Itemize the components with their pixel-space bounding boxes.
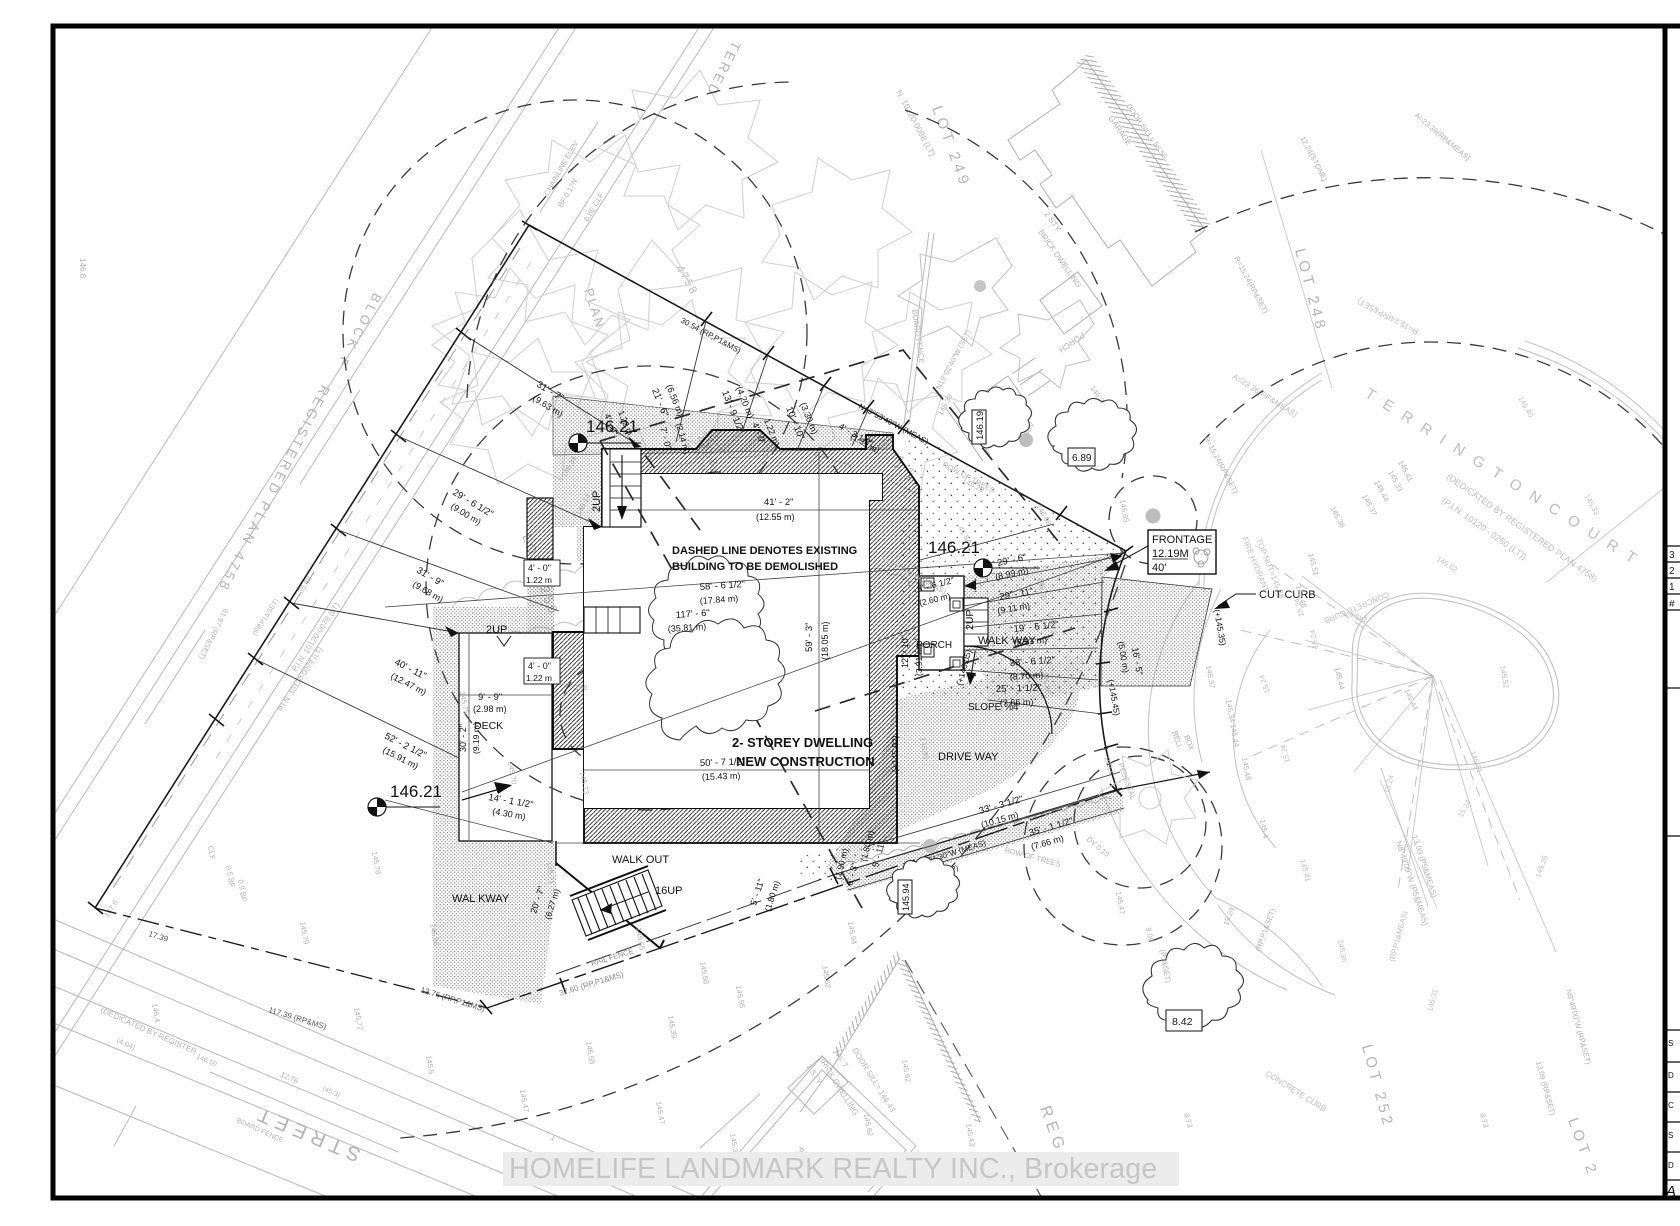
svg-text:BUILDING TO BE DEMOLISHED: BUILDING TO BE DEMOLISHED [672,561,838,573]
svg-text:(12.55 m): (12.55 m) [756,512,795,522]
svg-text:40': 40' [1152,562,1166,574]
svg-text:146.21: 146.21 [390,782,442,801]
svg-text:146: 146 [575,683,588,692]
svg-text:1.22 m: 1.22 m [526,575,552,585]
svg-text:WALK WAY: WALK WAY [978,635,1036,647]
svg-text:(+145.92): (+145.92) [890,735,900,772]
svg-text:8.42: 8.42 [1172,1016,1193,1028]
svg-text:30' - 2": 30' - 2" [458,724,468,752]
svg-text:59' - 3": 59' - 3" [804,623,815,652]
svg-text:DASHED LINE DENOTES EXISTING: DASHED LINE DENOTES EXISTING [672,545,857,557]
svg-text:S: S [1668,1131,1673,1140]
svg-text:6.89: 6.89 [1072,453,1092,464]
svg-text:WALK OUT: WALK OUT [612,854,669,866]
svg-text:12.19M: 12.19M [1152,548,1189,560]
svg-text:S: S [1668,1039,1673,1048]
svg-text:145.94: 145.94 [901,883,911,911]
svg-text:146.19: 146.19 [975,411,986,440]
svg-text:(18.05 m): (18.05 m) [820,621,830,660]
svg-text:16UP: 16UP [655,885,683,897]
svg-text:4' - 0": 4' - 0" [528,661,551,671]
svg-text:FRONTAGE: FRONTAGE [1152,534,1212,546]
svg-text:2: 2 [1669,566,1675,577]
svg-text:2UP: 2UP [486,624,507,636]
svg-text:146.21: 146.21 [586,417,638,436]
svg-text:(9.19 m): (9.19 m) [471,722,481,754]
svg-text:(3.91 m): (3.91 m) [914,644,924,676]
svg-text:2- STOREY DWELLING: 2- STOREY DWELLING [732,735,873,750]
svg-text:HOMELIFE LANDMARK REALTY INC.,: HOMELIFE LANDMARK REALTY INC., Brokerage [509,1153,1157,1185]
svg-text:146.8: 146.8 [78,258,87,279]
svg-text:(2.98 m): (2.98 m) [473,704,507,714]
svg-text:C: C [1668,1101,1674,1110]
svg-text:12' - 10": 12' - 10" [900,635,910,668]
svg-text:WAL KWAY: WAL KWAY [452,893,510,905]
svg-text:D: D [1668,1071,1674,1080]
svg-text:41' - 2": 41' - 2" [764,497,793,508]
svg-text:1: 1 [1669,582,1675,593]
svg-text:DRIVE WAY: DRIVE WAY [938,751,999,763]
svg-text:25' - 1 1/2": 25' - 1 1/2" [996,682,1042,695]
svg-text:9' - 9": 9' - 9" [478,692,502,703]
svg-text:NEW CONSTRUCTION: NEW CONSTRUCTION [736,754,875,769]
svg-text:2UP: 2UP [591,491,603,512]
svg-text:3: 3 [1669,550,1675,561]
svg-text:4' - 0": 4' - 0" [528,563,551,573]
svg-text:1.22 m: 1.22 m [526,673,552,683]
svg-text:#: # [1669,599,1675,610]
svg-text:SLOPE %4: SLOPE %4 [968,702,1019,713]
svg-text:(15.43 m): (15.43 m) [702,771,741,782]
svg-text:D: D [1668,1161,1674,1170]
